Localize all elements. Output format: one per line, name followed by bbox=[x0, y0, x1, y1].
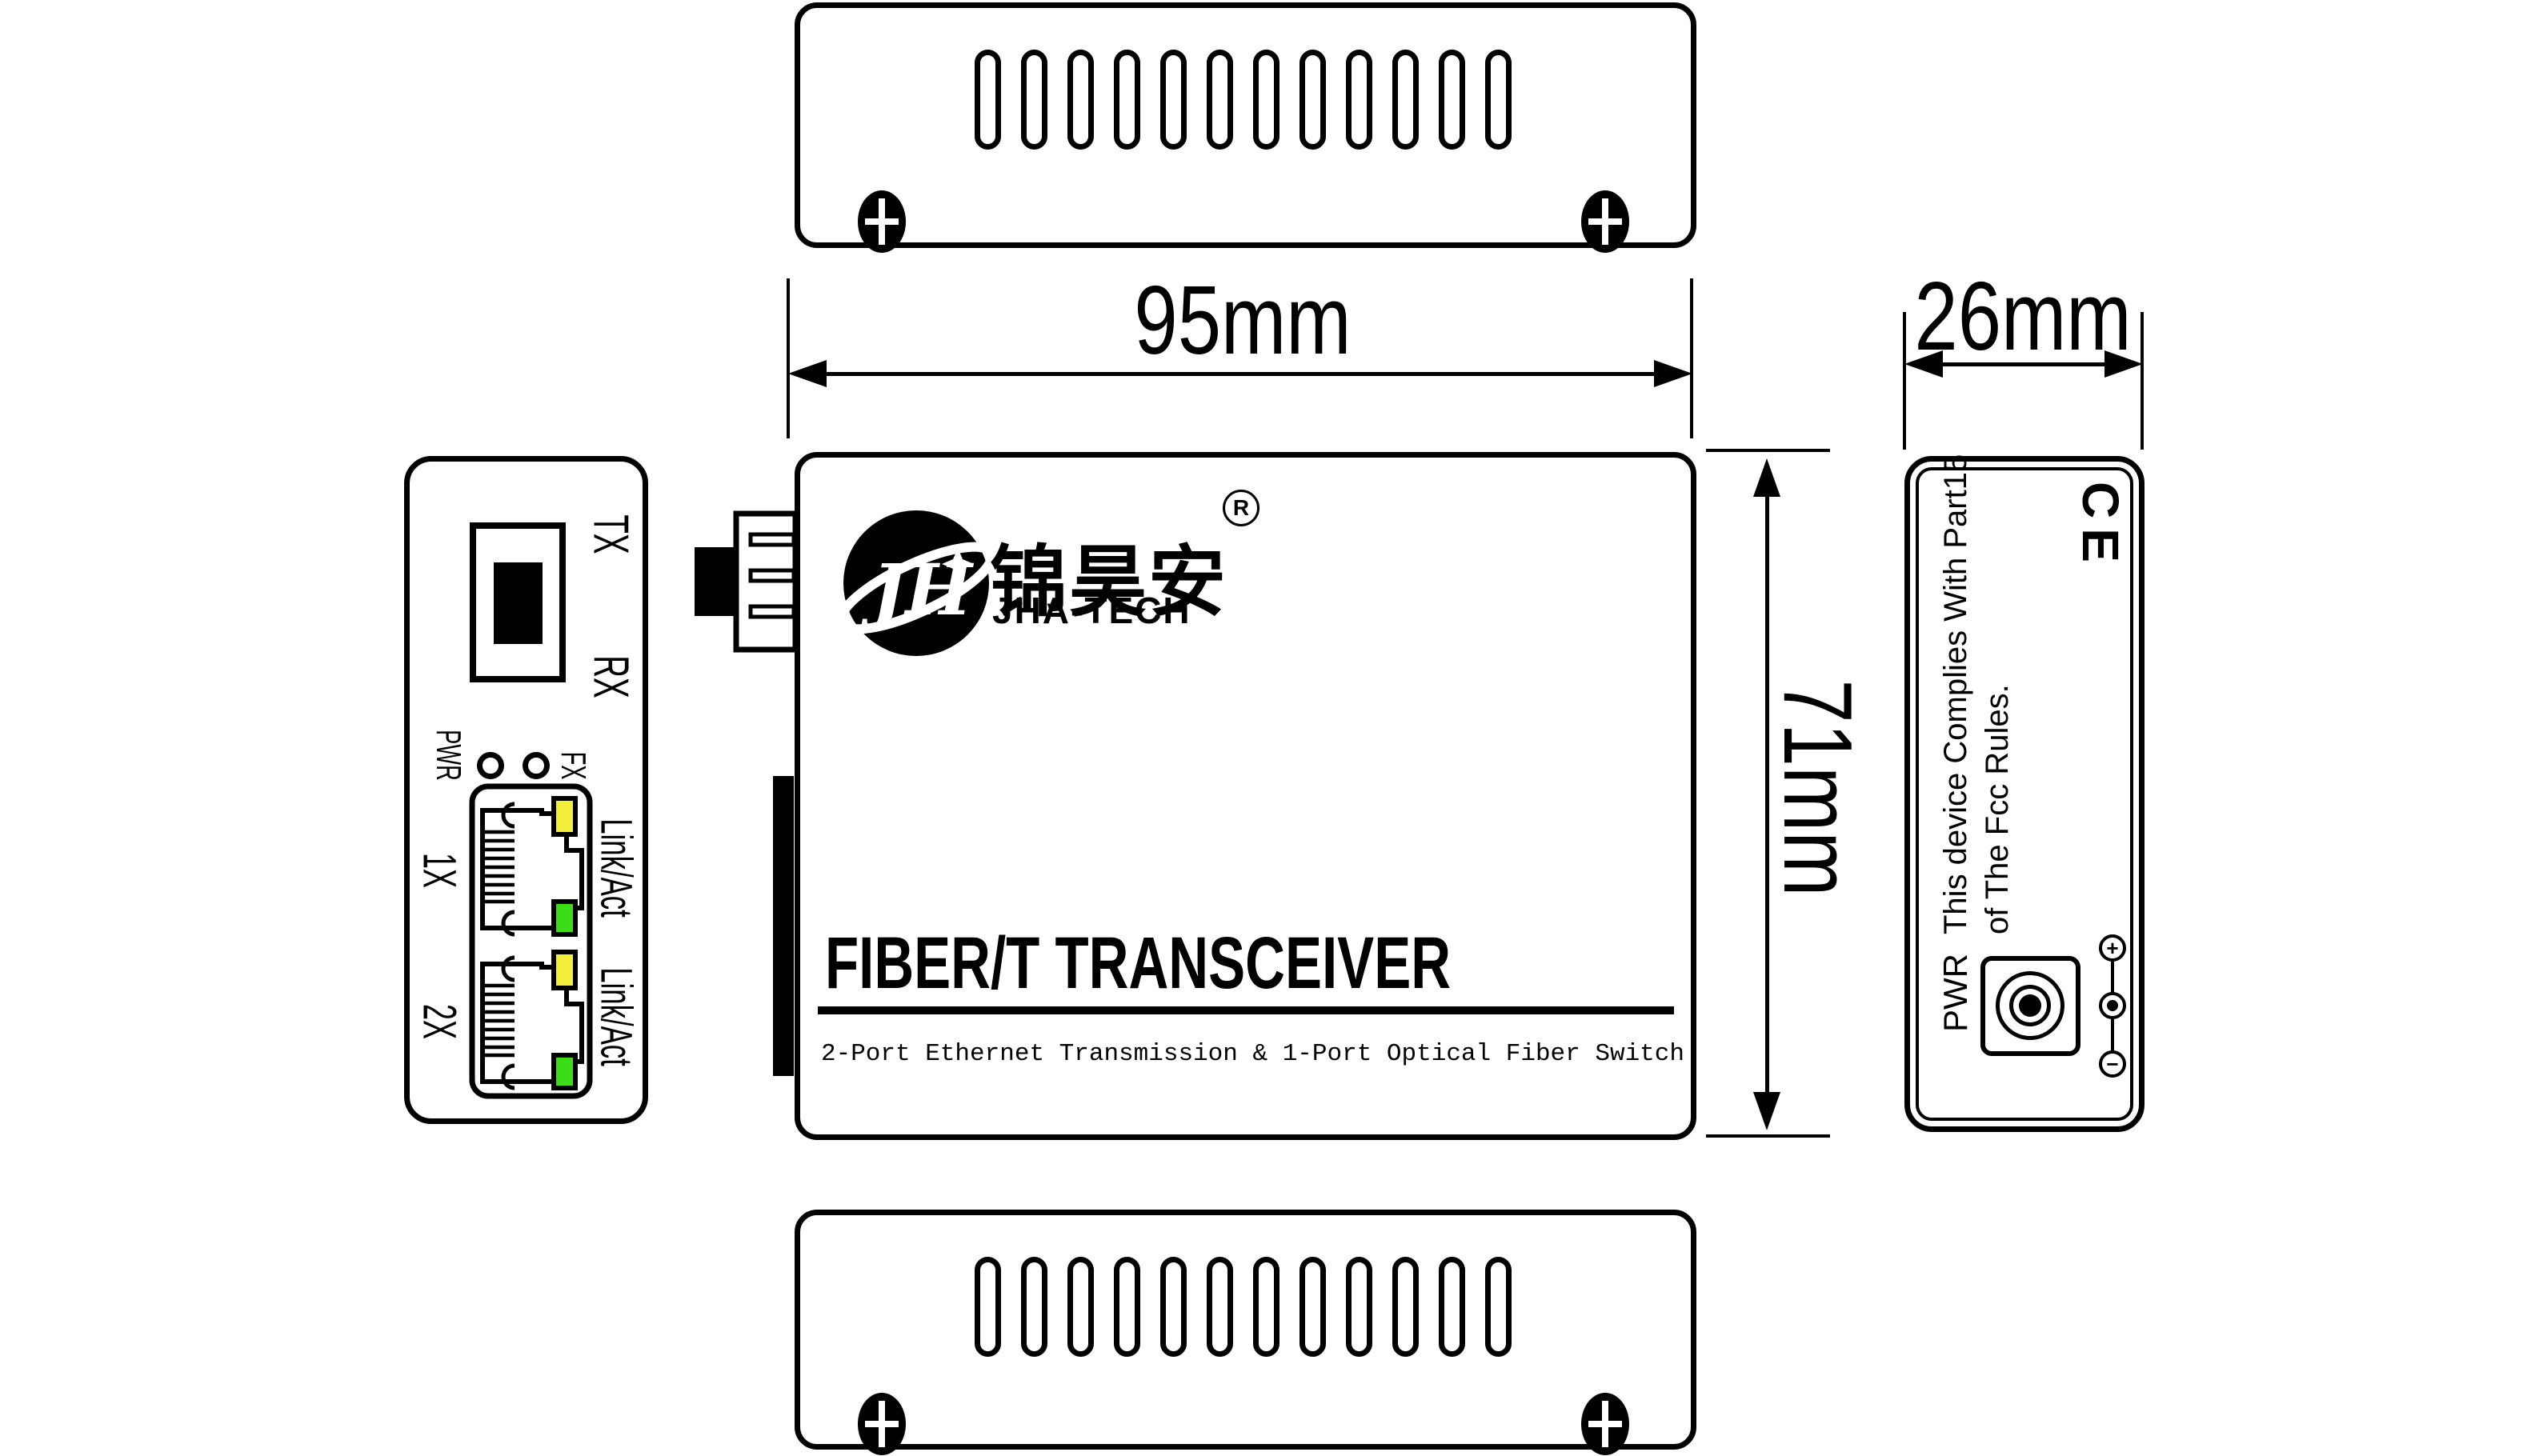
led-yellow bbox=[554, 952, 575, 988]
depth-dimension-label: 26mm bbox=[1914, 260, 2131, 372]
bottom-view-panel bbox=[795, 1210, 1696, 1450]
title-underline bbox=[818, 1006, 1674, 1014]
vent-slot bbox=[1207, 1257, 1233, 1357]
ce-mark: CE bbox=[2071, 482, 2130, 572]
fcc-line1: This device Complies With Part15 bbox=[1935, 454, 1976, 934]
power-jack-pin bbox=[2019, 994, 2041, 1017]
port2-linkact-label: Link/Act bbox=[591, 967, 643, 1066]
vent-slot bbox=[1346, 1257, 1372, 1357]
screw-icon bbox=[1581, 190, 1629, 253]
arrowhead-down-icon bbox=[1753, 1092, 1780, 1130]
arrowhead-right-icon bbox=[1654, 360, 1692, 387]
screw-icon bbox=[858, 1393, 906, 1455]
technical-drawing: 95mm 26mm 71mm JH 锦昊安 R JHA-TECH bbox=[0, 0, 2547, 1456]
rj45-bay-edge bbox=[773, 776, 794, 1076]
fcc-line2: of The Fcc Rules. bbox=[1976, 454, 2018, 934]
extension-line bbox=[1706, 449, 1830, 452]
screw-icon bbox=[858, 190, 906, 253]
fcc-statement: This device Complies With Part15 of The … bbox=[1935, 454, 2018, 934]
vent-slot bbox=[1392, 1257, 1419, 1357]
vent-slot bbox=[1253, 50, 1280, 150]
vent-slot bbox=[1021, 1257, 1047, 1357]
vent-slot bbox=[1067, 1257, 1094, 1357]
pwr-led-label: PWR bbox=[428, 730, 468, 781]
fiber-port bbox=[470, 522, 566, 682]
vent-slot bbox=[1485, 50, 1512, 150]
extension-line bbox=[1903, 312, 1906, 450]
vent-slot bbox=[975, 50, 1001, 150]
extension-line bbox=[2141, 312, 2144, 450]
vent-slot bbox=[1160, 1257, 1187, 1357]
vent-slot bbox=[975, 1257, 1001, 1357]
vent-slot bbox=[1207, 50, 1233, 150]
extension-line bbox=[1690, 278, 1693, 438]
vent-slot bbox=[1114, 50, 1140, 150]
port2-label: 2X bbox=[413, 1004, 467, 1039]
product-subtitle: 2-Port Ethernet Transmission & 1-Port Op… bbox=[821, 1040, 1684, 1068]
vent-slot bbox=[1160, 50, 1187, 150]
vent-slot bbox=[1253, 1257, 1280, 1357]
port1-linkact-label: Link/Act bbox=[591, 818, 643, 918]
vent-slot bbox=[1346, 50, 1372, 150]
bottom-vent-slots bbox=[975, 1257, 1512, 1357]
top-vent-slots bbox=[975, 50, 1512, 150]
vent-slot bbox=[1392, 50, 1419, 150]
polarity-center bbox=[2099, 992, 2126, 1019]
pwr-jack-label: PWR bbox=[1936, 954, 1975, 1032]
fx-led-icon bbox=[523, 752, 550, 779]
port1-label: 1X bbox=[413, 853, 467, 888]
sc-connector-icon bbox=[687, 507, 799, 656]
registered-trademark-icon: R bbox=[1223, 490, 1259, 526]
led-yellow bbox=[554, 798, 575, 834]
rj45-port-2 bbox=[483, 952, 582, 1088]
fiber-port-opening bbox=[494, 562, 543, 644]
led-green bbox=[554, 902, 575, 934]
arrowhead-up-icon bbox=[1753, 458, 1780, 497]
vent-slot bbox=[1439, 1257, 1465, 1357]
vent-slot bbox=[1021, 50, 1047, 150]
brand-latin-name: JHA-TECH bbox=[992, 589, 1191, 632]
vent-slot bbox=[1439, 50, 1465, 150]
vent-slot bbox=[1114, 1257, 1140, 1357]
brand-logo-icon: JH bbox=[842, 508, 994, 660]
vent-slot bbox=[1067, 50, 1094, 150]
rj45-port-1 bbox=[483, 798, 582, 934]
width-dimension-label: 95mm bbox=[1134, 264, 1351, 376]
product-title: FIBER/T TRANSCEIVER bbox=[825, 922, 1451, 1006]
vent-slot bbox=[1485, 1257, 1512, 1357]
polarity-minus: − bbox=[2099, 1050, 2126, 1078]
extension-line bbox=[1706, 1134, 1830, 1138]
vent-slot bbox=[1300, 1257, 1326, 1357]
fiber-rx-label: RX bbox=[583, 655, 639, 698]
height-dimension-label: 71mm bbox=[1762, 679, 1874, 896]
led-green bbox=[554, 1055, 575, 1088]
fiber-tx-label: TX bbox=[583, 514, 639, 554]
vent-slot bbox=[1300, 50, 1326, 150]
extension-line bbox=[787, 278, 790, 438]
polarity-center-dot bbox=[2107, 1000, 2118, 1011]
fx-led-label: FX bbox=[553, 752, 593, 780]
arrowhead-left-icon bbox=[788, 360, 827, 387]
polarity-plus: + bbox=[2099, 934, 2126, 962]
top-view-panel bbox=[795, 2, 1696, 248]
pwr-led-icon bbox=[477, 752, 504, 779]
screw-icon bbox=[1581, 1393, 1629, 1455]
